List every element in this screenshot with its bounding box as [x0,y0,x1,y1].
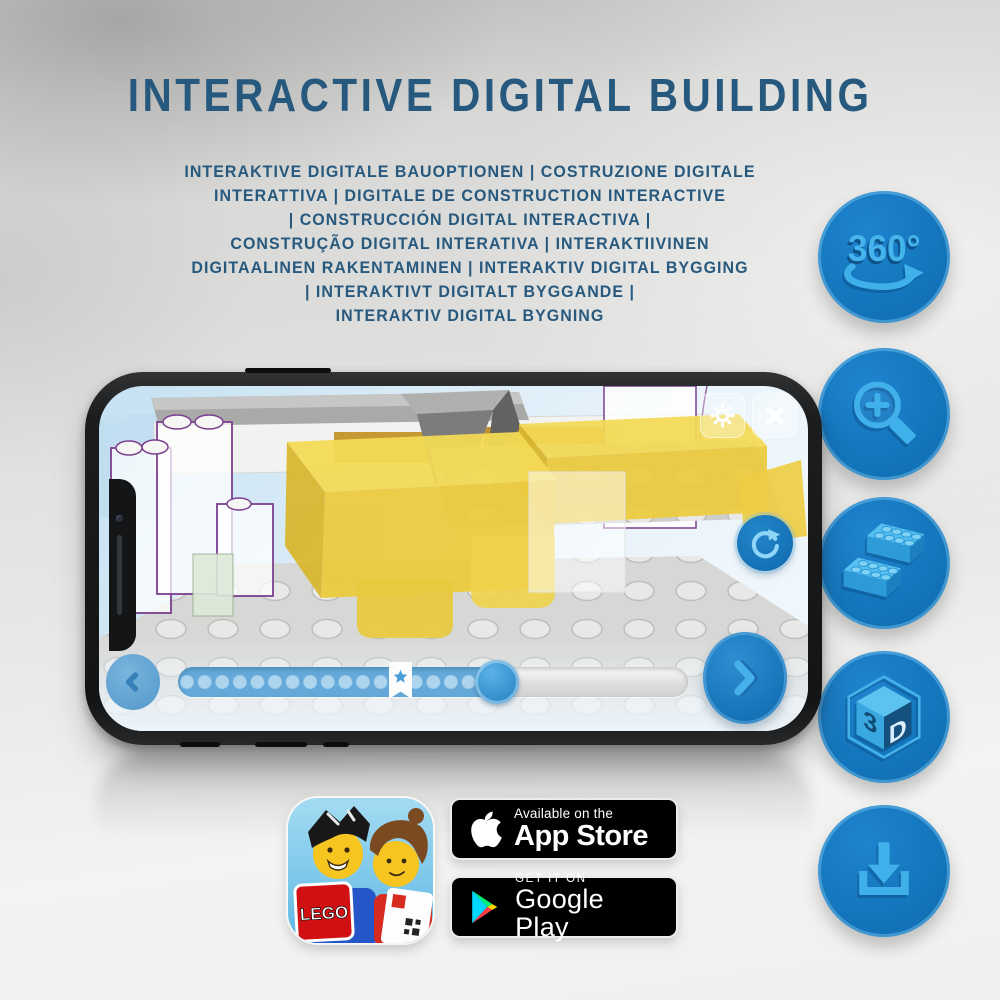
3d-cube-icon: 3 D [841,674,927,760]
google-play-icon [466,886,503,928]
previous-step-button[interactable] [106,654,160,710]
lego-builder-app-icon[interactable]: LEGO [288,798,433,943]
settings-button[interactable] [700,393,745,438]
gear-icon [709,402,736,429]
star-icon [392,668,409,685]
subtitle-line: INTERAKTIVE DIGITALE BAUOPTIONEN | COSTR… [122,160,818,184]
speaker-slot [180,742,220,747]
subtitle-line: CONSTRUÇÃO DIGITAL INTERATIVA | INTERAKT… [122,232,818,256]
download-icon [844,831,924,911]
subtitle-line: | CONSTRUCCIÓN DIGITAL INTERACTIVA | [122,208,818,232]
close-button[interactable] [752,393,797,438]
rotate-model-button[interactable] [737,515,793,571]
app-store-tagline: Available on the [514,807,648,821]
phone-screen [99,386,808,731]
close-icon [762,403,788,429]
page-title: INTERACTIVE DIGITAL BUILDING [0,68,1000,122]
volume-button [245,368,331,373]
progress-bar-fill [178,667,515,697]
app-store-badge[interactable]: Available on the App Store [450,798,678,860]
feature-brick [818,497,950,629]
rotation-arrow-icon [840,263,928,293]
port-slot [255,742,307,747]
lego-app-artwork: LEGO [288,798,433,943]
rotate-icon [748,526,782,560]
zoom-in-icon [843,373,925,455]
lego-logo: LEGO [300,903,349,924]
subtitle-block: INTERAKTIVE DIGITALE BAUOPTIONEN | COSTR… [122,160,818,328]
app-store-name: App Store [514,821,648,851]
chevron-left-icon [118,667,148,697]
next-step-button[interactable] [703,632,787,724]
feature-zoom [818,348,950,480]
progress-knob[interactable] [475,660,519,704]
app-store-badge-text: Available on the App Store [514,807,648,852]
google-play-tagline: GET IT ON [515,873,662,885]
google-play-badge-text: GET IT ON Google Play [515,873,662,942]
subtitle-line: | INTERAKTIVT DIGITALT BYGGANDE | [122,280,818,304]
brick-icon [839,518,929,608]
front-camera [116,515,123,522]
phone-mockup [85,372,822,745]
earpiece-speaker [117,535,122,615]
feature-360-rotation: 360° [818,191,950,323]
phone-notch [109,479,136,651]
feature-download [818,805,950,937]
subtitle-line: DIGITAALINEN RAKENTAMINEN | INTERAKTIV D… [122,256,818,280]
port-slot [323,742,349,747]
subtitle-line: INTERAKTIV DIGITAL BYGNING [122,304,818,328]
google-play-name: Google Play [515,885,662,942]
apple-logo-icon [466,807,502,851]
subtitle-line: INTERATTIVA | DIGITALE DE CONSTRUCTION I… [122,184,818,208]
google-play-badge[interactable]: GET IT ON Google Play [450,876,678,938]
feature-3d-view: 3 D [818,651,950,783]
progress-bar[interactable] [178,667,688,697]
chevron-right-icon [727,655,763,701]
